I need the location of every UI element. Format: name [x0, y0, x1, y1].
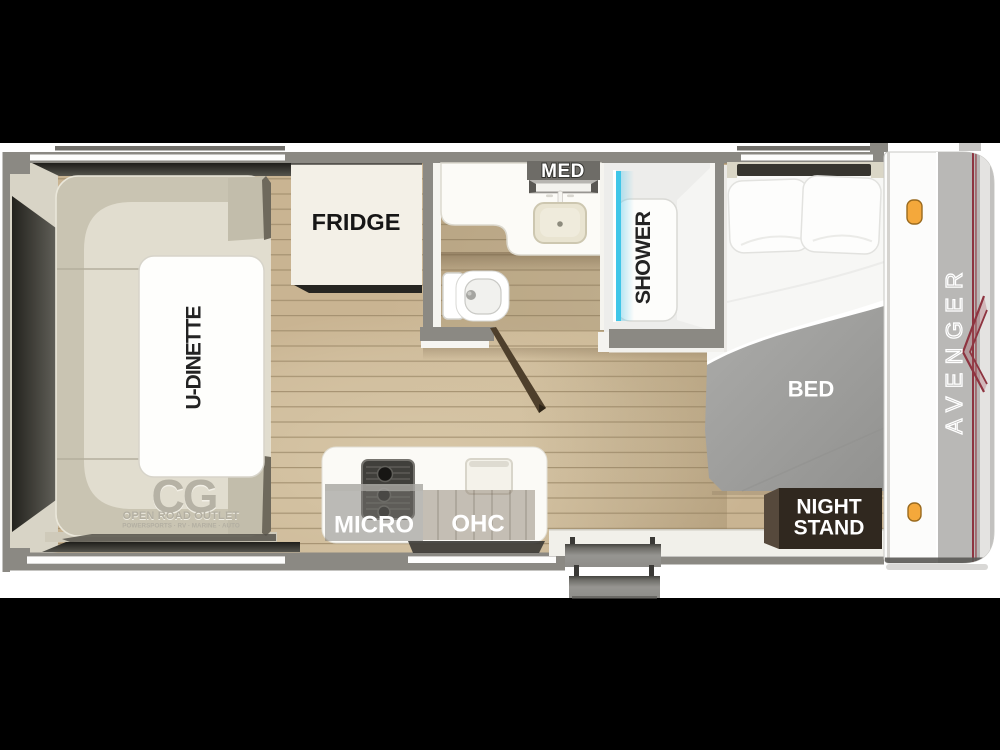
svg-text:MICRO: MICRO [334, 512, 414, 539]
svg-text:OPEN ROAD OUTLET: OPEN ROAD OUTLET [123, 510, 240, 522]
svg-text:FRIDGE: FRIDGE [312, 209, 401, 235]
svg-text:MED: MED [541, 161, 585, 182]
svg-text:SHOWER: SHOWER [631, 211, 655, 305]
svg-text:AVENGER: AVENGER [941, 264, 967, 434]
svg-text:U-DINETTE: U-DINETTE [183, 306, 206, 410]
svg-text:STAND: STAND [794, 517, 865, 540]
svg-text:NIGHT: NIGHT [796, 496, 862, 519]
svg-text:OHC: OHC [451, 511, 504, 538]
svg-text:POWERSPORTS · RV · MARINE · AU: POWERSPORTS · RV · MARINE · AUTO [122, 523, 240, 530]
svg-text:BED: BED [788, 377, 834, 402]
